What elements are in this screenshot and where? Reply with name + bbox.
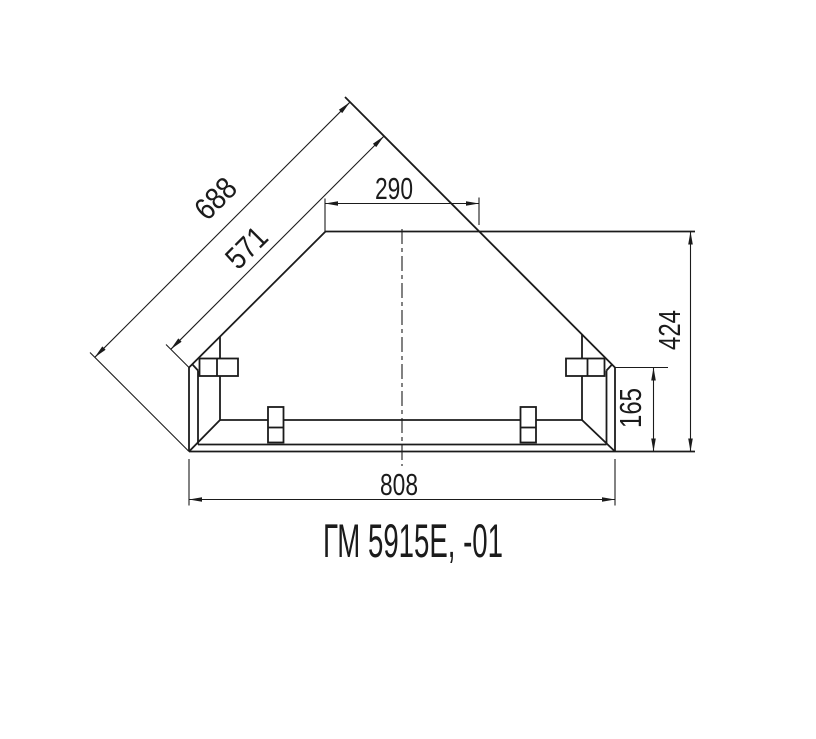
dimension-top-edge: 290 <box>325 171 479 232</box>
arrowhead <box>189 497 202 502</box>
dimension-overall-height: 424 <box>652 232 693 452</box>
arrowhead <box>651 439 656 452</box>
dimension-panel-height: 165 <box>613 368 668 452</box>
technical-drawing: 290 808 424 165 688 571 <box>0 0 816 739</box>
dimension-line <box>171 136 384 349</box>
dim-text-424: 424 <box>652 310 687 350</box>
extension-line <box>166 345 189 368</box>
right-inner-corner-diagonal <box>582 420 615 452</box>
dim-text-688: 688 <box>187 170 244 227</box>
dim-text-571: 571 <box>218 219 275 276</box>
dimension-diagonal-edge: 571 <box>166 136 384 367</box>
right-bend-chamfer <box>607 364 613 371</box>
dim-text-165: 165 <box>613 388 648 428</box>
extension-line <box>90 353 189 452</box>
dim-text-290: 290 <box>375 171 413 206</box>
cam-lock-left-horizontal <box>200 359 239 377</box>
dim-text-808: 808 <box>380 467 418 502</box>
drawing-title: ГМ 5915Е, -01 <box>323 514 503 567</box>
left-bend-chamfer <box>192 364 198 371</box>
drawing-canvas: 290 808 424 165 688 571 <box>0 0 816 739</box>
cam-lock-left-vertical <box>268 407 284 443</box>
left-inner-corner-diagonal <box>189 420 220 452</box>
arrowhead <box>688 439 693 452</box>
arrowhead <box>688 232 693 245</box>
cam-lock-right-horizontal <box>566 359 605 377</box>
arrowhead <box>325 201 338 206</box>
arrowhead <box>466 201 479 206</box>
dimension-line <box>95 102 350 357</box>
arrowhead <box>651 368 656 381</box>
arrowhead <box>602 497 615 502</box>
cam-lock-right-vertical <box>521 407 537 443</box>
